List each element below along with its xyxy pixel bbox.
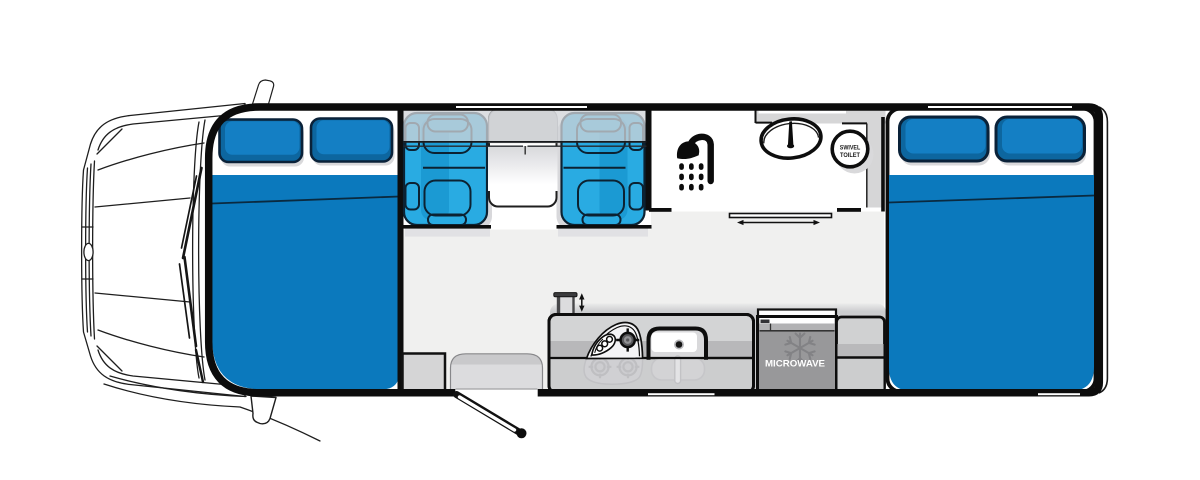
svg-text:MICROWAVE: MICROWAVE xyxy=(765,359,825,369)
svg-text:TOILET: TOILET xyxy=(840,152,860,159)
svg-text:SWIVEL: SWIVEL xyxy=(840,144,861,151)
